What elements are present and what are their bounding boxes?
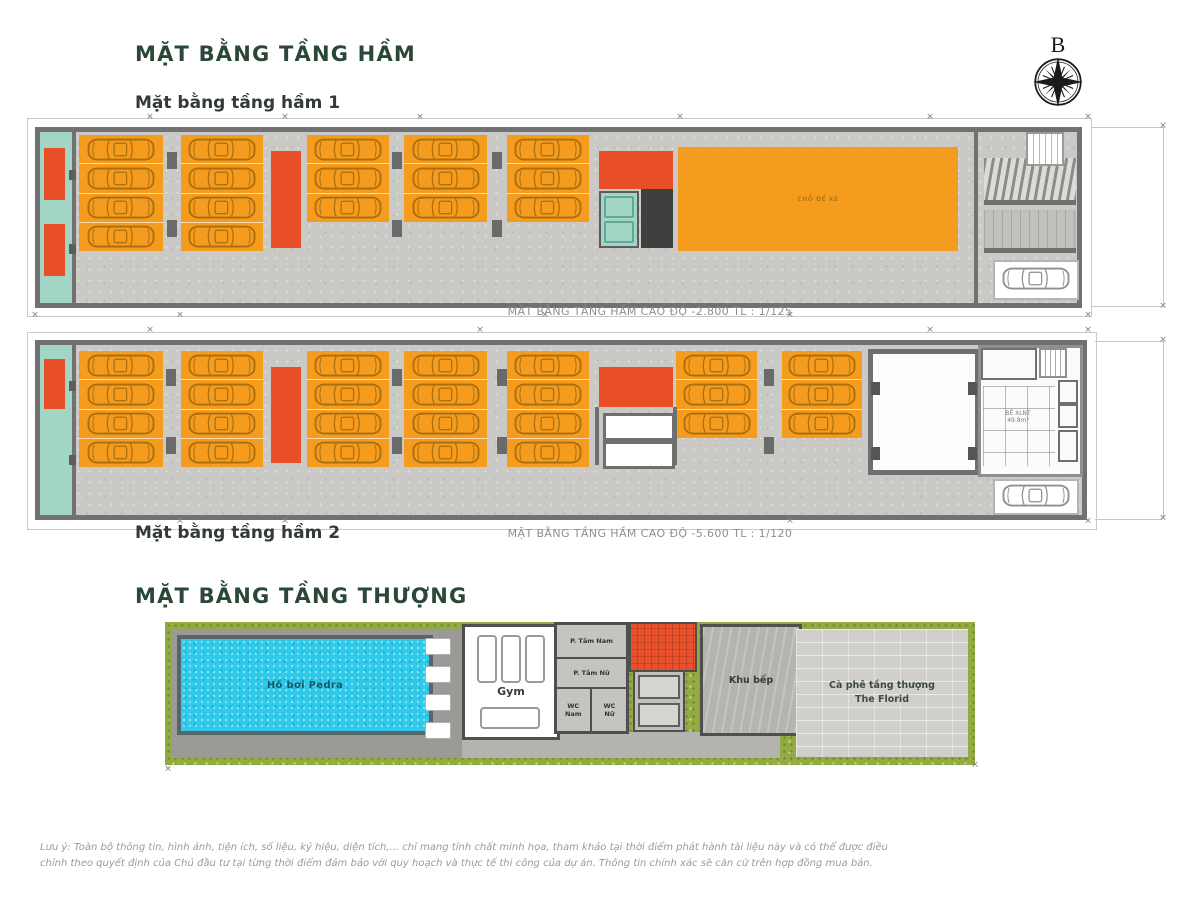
structural-column — [392, 152, 402, 169]
car-icon — [79, 351, 163, 380]
wall-notch — [968, 447, 977, 460]
dimension-tick: ✕ — [1159, 337, 1167, 346]
car-icon — [79, 380, 163, 409]
gym-equipment — [477, 635, 497, 683]
small-room — [1058, 404, 1078, 428]
car-icon — [676, 351, 757, 380]
stair-box — [1026, 132, 1064, 166]
lower-ramp — [984, 210, 1076, 248]
basement1-subtitle: Mặt bằng tầng hầm 1 — [135, 93, 340, 113]
ramp-wall — [984, 248, 1076, 253]
dimension-tick: ✕ — [146, 327, 154, 336]
dimension-line — [1163, 127, 1164, 307]
car-icon — [782, 351, 862, 380]
elevator-cab — [638, 703, 680, 727]
gym-bench — [480, 707, 540, 729]
gym-equipment — [525, 635, 545, 683]
car-icon — [507, 194, 589, 222]
kitchen-area: Khu bếp — [700, 624, 802, 736]
car-icon — [676, 410, 757, 438]
plant-room-area: BỂ XLNT 49.8m³ — [978, 345, 1083, 477]
disclaimer-line2: chỉnh theo quyết định của Chủ đầu tư tại… — [40, 856, 1165, 872]
basement1-caption: MẶT BẰNG TẦNG HẦM CAO ĐỘ -2.800 TL : 1/1… — [400, 305, 900, 318]
car-icon — [507, 410, 589, 439]
plant-room — [981, 348, 1037, 380]
structural-column — [167, 152, 177, 169]
wc-women-label: WC Nữ — [603, 702, 615, 718]
parking-block — [307, 351, 389, 467]
car-icon — [79, 135, 163, 164]
technical-room — [868, 349, 980, 475]
lift-pit — [603, 413, 675, 441]
gym-label: Gym — [465, 685, 557, 698]
dimension-tick: ✕ — [416, 114, 424, 123]
parking-block — [181, 351, 263, 467]
elevator-cab — [604, 221, 634, 243]
parking-block — [782, 351, 862, 438]
wall-notch — [968, 382, 977, 395]
shower-women-label: P. Tắm Nữ — [573, 669, 609, 677]
car-icon — [1001, 266, 1071, 295]
car-icon — [1001, 483, 1071, 512]
parking-stall — [993, 260, 1079, 300]
dimension-tick: ✕ — [1084, 312, 1092, 321]
car-icon — [181, 223, 263, 251]
car-icon — [181, 135, 263, 164]
car-icon — [404, 439, 487, 467]
car-icon — [307, 135, 389, 164]
lounge-chairs — [417, 632, 461, 752]
wc-men-room: WC Nam — [557, 689, 592, 731]
swimming-pool: Hồ bơi Pedra — [177, 635, 433, 735]
dimension-tick: ✕ — [176, 312, 184, 321]
rooftop-section-title: MẶT BẰNG TẦNG THƯỢNG — [135, 584, 467, 608]
rooftop-cafe-area: Cà phê tầng thượng The Florid — [796, 629, 968, 757]
parking-block — [404, 351, 487, 467]
dimension-tick: ✕ — [1159, 303, 1167, 312]
car-icon — [404, 380, 487, 409]
structural-column — [764, 437, 774, 454]
car-icon — [181, 380, 263, 409]
car-icon — [307, 194, 389, 222]
structural-column — [492, 152, 502, 169]
structural-column — [166, 437, 176, 454]
parking-block — [507, 351, 589, 467]
parking-block — [79, 135, 163, 251]
wc-women-room: WC Nữ — [593, 689, 626, 731]
dimension-tick: ✕ — [1159, 515, 1167, 524]
shower-men-room: P. Tắm Nam — [557, 625, 626, 659]
car-icon — [79, 439, 163, 467]
dimension-tick: ✕ — [1084, 114, 1092, 123]
car-icon — [404, 351, 487, 380]
pool-label: Hồ bơi Pedra — [267, 680, 343, 691]
dimension-line — [1091, 127, 1163, 128]
dimension-line — [1163, 341, 1164, 519]
gym-equipment — [501, 635, 521, 683]
car-icon — [507, 135, 589, 164]
compass-north-label: B — [1030, 34, 1086, 56]
dimension-tick: ✕ — [926, 114, 934, 123]
parking-block — [404, 135, 487, 222]
car-icon — [307, 410, 389, 439]
structural-column — [764, 369, 774, 386]
small-room — [1058, 380, 1078, 404]
parking-block — [181, 135, 263, 251]
motorbike-parking-label: CHỖ ĐỂ XE — [797, 196, 838, 203]
car-icon — [181, 439, 263, 467]
car-icon — [507, 380, 589, 409]
lift-pit — [603, 441, 675, 469]
car-icon — [676, 380, 757, 409]
car-icon — [307, 351, 389, 380]
car-icon — [181, 194, 263, 223]
ramp-wall — [984, 200, 1076, 205]
basement2-subtitle: Mặt bằng tầng hầm 2 — [135, 523, 340, 543]
car-icon — [307, 380, 389, 409]
lounge-chair-icon — [425, 694, 451, 711]
rooftop-elevator-zone — [633, 670, 685, 732]
cafe-label: Cà phê tầng thượng The Florid — [829, 679, 935, 708]
dimension-tick: ✕ — [281, 114, 289, 123]
dimension-tick: ✕ — [926, 327, 934, 336]
structural-column — [167, 220, 177, 237]
car-icon — [307, 164, 389, 193]
car-icon — [507, 439, 589, 467]
parking-block — [676, 351, 757, 438]
motorbike-parking-area: CHỖ ĐỂ XE — [678, 147, 958, 251]
ramp-strip — [271, 367, 301, 463]
car-icon — [79, 223, 163, 251]
compass-rose-icon — [1032, 56, 1084, 108]
kitchen-label: Khu bếp — [729, 675, 773, 686]
basement2-caption: MẶT BẰNG TẦNG HẦM CAO ĐỘ -5.600 TL : 1/1… — [400, 527, 900, 540]
sanitary-block: P. Tắm Nam P. Tắm Nữ WC Nam WC Nữ — [554, 622, 629, 734]
disclaimer: Lưu ý: Toàn bộ thông tin, hình ảnh, tiện… — [40, 840, 1165, 872]
basement1-plan: CHỖ ĐỂ XE — [35, 127, 1082, 308]
tank-label: BỂ XLNT 49.8m³ — [989, 410, 1047, 424]
parking-block — [307, 135, 389, 222]
rooftop-plan: Hồ bơi Pedra Gym P. Tắm Nam P. Tắm Nữ WC… — [165, 622, 975, 765]
car-icon — [181, 351, 263, 380]
dimension-tick: ✕ — [146, 114, 154, 123]
lounge-chair-icon — [425, 722, 451, 739]
dimension-line — [1091, 306, 1163, 307]
elevator-cab — [638, 675, 680, 699]
basement2-plan: BỂ XLNT 49.8m³ — [35, 340, 1087, 520]
car-icon — [307, 439, 389, 467]
small-room — [1058, 430, 1078, 462]
elevator-core — [599, 191, 639, 248]
dimension-line — [1095, 341, 1163, 342]
car-icon — [782, 410, 862, 438]
lounge-chair-icon — [425, 666, 451, 683]
stair-box — [1039, 348, 1067, 378]
service-shaft — [641, 189, 673, 248]
gym-room: Gym — [462, 624, 560, 740]
dimension-tick: ✕ — [476, 327, 484, 336]
basement-section-title: MẶT BẰNG TẦNG HẦM — [135, 42, 416, 66]
dimension-tick: ✕ — [31, 312, 39, 321]
dimension-tick: ✕ — [1084, 327, 1092, 336]
compass: B — [1030, 34, 1086, 112]
dimension-tick: ✕ — [1159, 123, 1167, 132]
structural-column — [166, 369, 176, 386]
car-icon — [507, 351, 589, 380]
car-icon — [404, 410, 487, 439]
elevator-cab — [604, 196, 634, 218]
car-icon — [181, 164, 263, 193]
structural-column — [392, 220, 402, 237]
car-icon — [79, 164, 163, 193]
car-icon — [507, 164, 589, 193]
car-icon — [404, 164, 487, 193]
car-icon — [404, 194, 487, 222]
structural-column — [497, 369, 507, 386]
parking-block — [507, 135, 589, 222]
car-icon — [79, 194, 163, 223]
dimension-tick: ✕ — [164, 766, 172, 775]
parking-stall — [993, 479, 1079, 515]
ramp-strip — [271, 151, 301, 248]
shower-men-label: P. Tắm Nam — [570, 637, 613, 645]
tank-grid — [983, 386, 1055, 466]
wc-men-label: WC Nam — [565, 702, 582, 718]
wall-notch — [871, 382, 880, 395]
stair-core — [599, 151, 673, 189]
structural-column — [392, 437, 402, 454]
shower-women-room: P. Tắm Nữ — [557, 659, 626, 689]
core-wall — [595, 407, 599, 465]
disclaimer-line1: Lưu ý: Toàn bộ thông tin, hình ảnh, tiện… — [40, 840, 1165, 856]
car-icon — [782, 380, 862, 409]
dimension-tick: ✕ — [676, 114, 684, 123]
dimension-line — [1095, 519, 1163, 520]
wall-notch — [871, 447, 880, 460]
structural-column — [392, 369, 402, 386]
car-icon — [404, 135, 487, 164]
car-icon — [181, 410, 263, 439]
structural-column — [497, 437, 507, 454]
car-icon — [79, 410, 163, 439]
rooftop-stair-core — [629, 622, 697, 672]
parking-block — [79, 351, 163, 467]
lounge-chair-icon — [425, 638, 451, 655]
structural-column — [492, 220, 502, 237]
stair-core — [599, 367, 673, 407]
